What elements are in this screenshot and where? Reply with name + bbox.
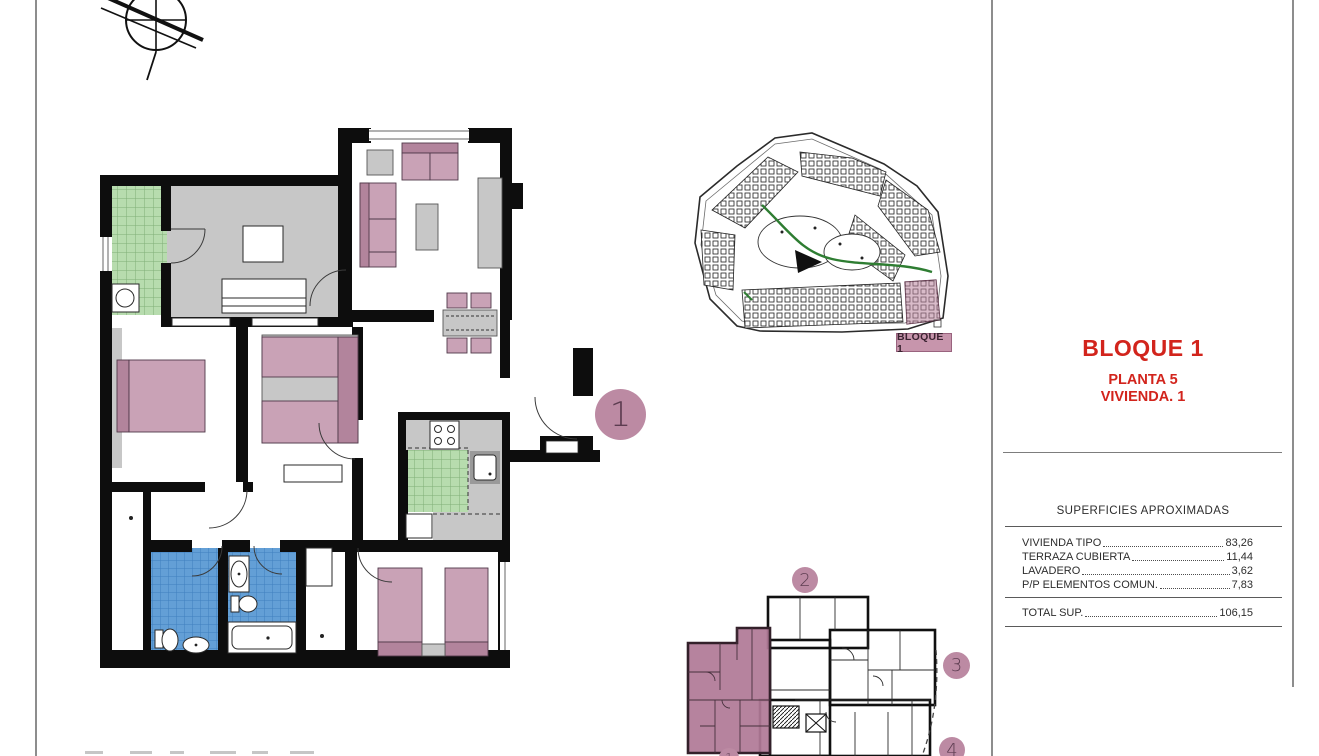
- closet-knob: [129, 516, 133, 520]
- main-floor-plan: [100, 128, 600, 668]
- unit-marker-4: 4: [939, 737, 965, 756]
- project-title: BLOQUE 1: [993, 335, 1293, 362]
- bottom-cutoff-mark: [210, 751, 236, 754]
- unit-marker-2: 2: [792, 567, 818, 593]
- row-label: TERRAZA CUBIERTA: [1022, 551, 1130, 563]
- keyplan-unit1-highlight: [688, 628, 770, 753]
- leader-dots: [1103, 546, 1223, 547]
- table-rule: [1005, 597, 1282, 598]
- bathtub: [228, 622, 296, 653]
- site-plan-block-label: BLOQUE 1: [896, 333, 952, 352]
- sheet-border-left: [35, 0, 37, 756]
- row-label: LAVADERO: [1022, 565, 1080, 577]
- total-value: 106,15: [1219, 607, 1253, 619]
- row-label: P/P ELEMENTOS COMUN.: [1022, 579, 1158, 591]
- north-arrow-icon: [101, 0, 203, 80]
- table-row: VIVIENDA TIPO 83,26: [1022, 535, 1253, 549]
- kitchen-tiled-floor: [406, 450, 468, 512]
- row-value: 11,44: [1226, 551, 1253, 563]
- areas-table-header: SUPERFICIES APROXIMADAS: [993, 505, 1293, 517]
- floor-label: PLANTA 5: [993, 372, 1293, 388]
- table-rule: [1005, 526, 1282, 527]
- row-value: 83,26: [1225, 537, 1253, 549]
- table-row: LAVADERO 3,62: [1022, 563, 1253, 577]
- unit-marker-3: 3: [943, 652, 970, 679]
- row-value: 3,62: [1232, 565, 1253, 577]
- leader-dots: [1085, 616, 1217, 617]
- titleblock-separator: [1003, 452, 1282, 453]
- site-plan: [695, 133, 948, 332]
- table-row: TERRAZA CUBIERTA 11,44: [1022, 549, 1253, 563]
- leader-dots: [1132, 560, 1224, 561]
- plan-sheet: BLOQUE 1 PLANTA 5 VIVIENDA. 1 SUPERFICIE…: [0, 0, 1319, 756]
- water-heater: [306, 548, 332, 586]
- keyplan-room-lines: [770, 597, 935, 756]
- row-value: 7,83: [1232, 579, 1253, 591]
- leader-dots: [1082, 574, 1229, 575]
- unit-label: VIVIENDA. 1: [993, 389, 1293, 405]
- bottom-cutoff-mark: [290, 751, 314, 754]
- unit-marker-selected: 1: [595, 389, 646, 440]
- washing-machine: [112, 284, 139, 312]
- bottom-cutoff-mark: [252, 751, 268, 754]
- bottom-cutoff-mark: [85, 751, 103, 754]
- bottom-cutoff-mark: [130, 751, 152, 754]
- bottom-cutoff-mark: [170, 751, 184, 754]
- corridor-knob: [320, 634, 324, 638]
- table-total-row: TOTAL SUP. 106,15: [1022, 605, 1253, 619]
- total-label: TOTAL SUP.: [1022, 607, 1083, 619]
- key-plan: [688, 597, 937, 756]
- row-label: VIVIENDA TIPO: [1022, 537, 1101, 549]
- areas-table: SUPERFICIES APROXIMADAS VIVIENDA TIPO 83…: [993, 505, 1293, 627]
- stove: [430, 421, 459, 449]
- table-row: P/P ELEMENTOS COMUN. 7,83: [1022, 577, 1253, 591]
- leader-dots: [1160, 588, 1230, 589]
- table-rule: [1005, 626, 1282, 627]
- site-highlighted-block: [905, 280, 941, 327]
